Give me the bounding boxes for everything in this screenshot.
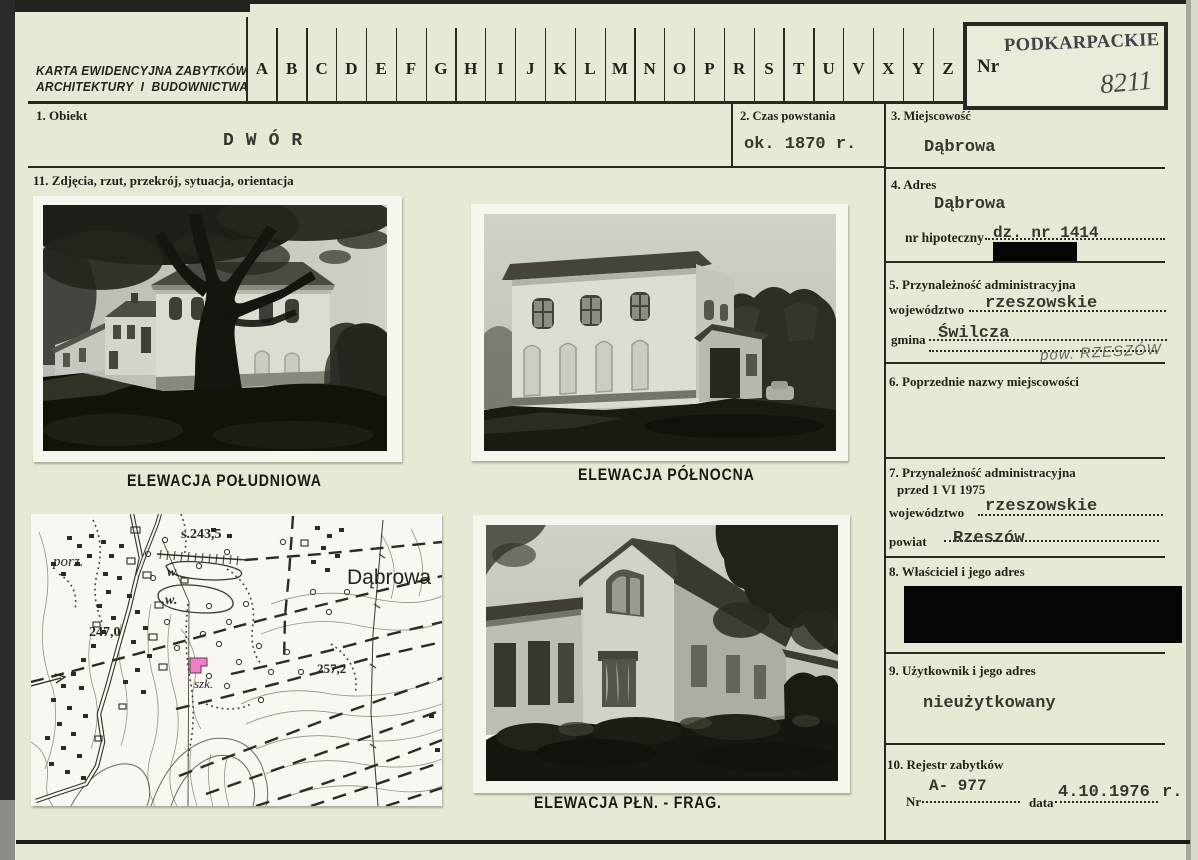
svg-text:Dąbrowa: Dąbrowa (347, 566, 431, 589)
svg-text:s.243,5: s.243,5 (181, 527, 221, 542)
svg-text:w.: w. (165, 593, 177, 608)
svg-text:szk.: szk. (194, 676, 213, 691)
svg-text:247,0: 247,0 (89, 625, 121, 640)
svg-text:257,2: 257,2 (317, 661, 346, 676)
svg-text:w.: w. (167, 565, 179, 580)
svg-text:porz.: porz. (52, 554, 83, 570)
